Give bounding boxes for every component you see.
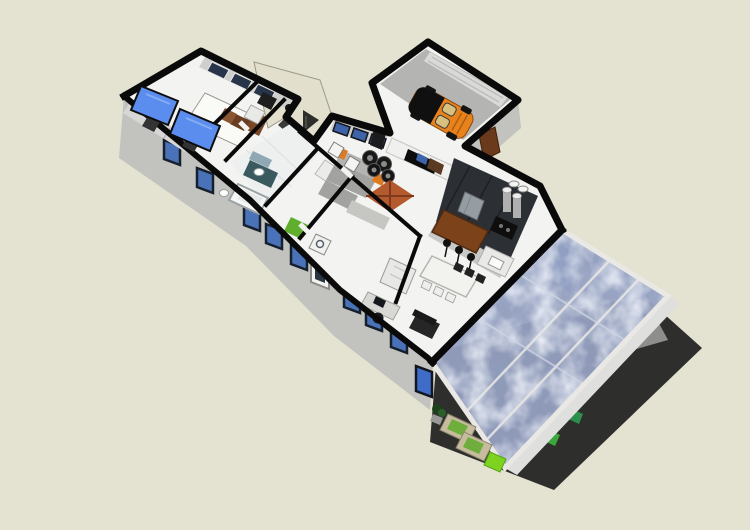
sink [254,169,264,176]
toilet [220,190,229,197]
model-viewport[interactable] [0,0,750,530]
canister [513,196,521,218]
blue-door [416,366,432,397]
floor-plan-canvas [0,0,750,530]
canister [503,190,511,212]
